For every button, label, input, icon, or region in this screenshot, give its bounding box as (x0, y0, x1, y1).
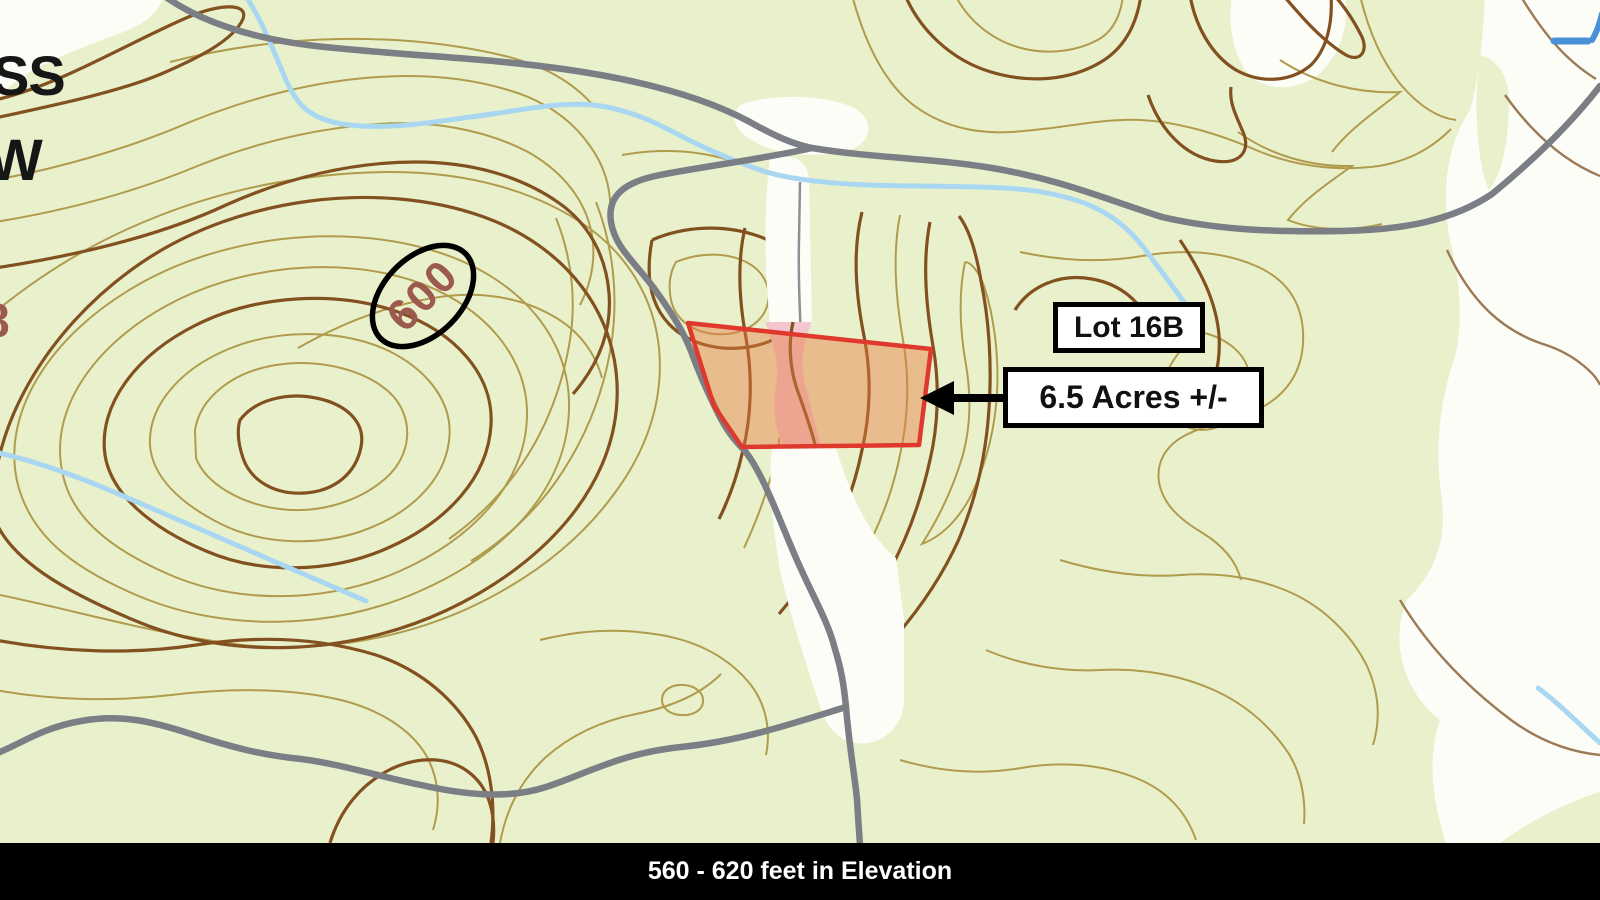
edge-label-ss: SS (0, 48, 65, 104)
footer-bar: 560 - 620 feet in Elevation (0, 843, 1600, 900)
lot-label: Lot 16B (1074, 311, 1184, 345)
topo-map-screenshot: 600 Lot 16B 6.5 Acres +/- SS W 8 560 - 6… (0, 0, 1600, 900)
lot-callout: Lot 16B (1053, 302, 1205, 353)
topo-map-svg: 600 (0, 0, 1600, 843)
edge-label-w: W (0, 132, 42, 190)
acreage-callout: 6.5 Acres +/- (1003, 367, 1264, 428)
partial-contour-digit: 8 (0, 298, 10, 346)
acreage-label: 6.5 Acres +/- (1039, 379, 1227, 416)
elevation-text: 560 - 620 feet in Elevation (648, 857, 952, 886)
